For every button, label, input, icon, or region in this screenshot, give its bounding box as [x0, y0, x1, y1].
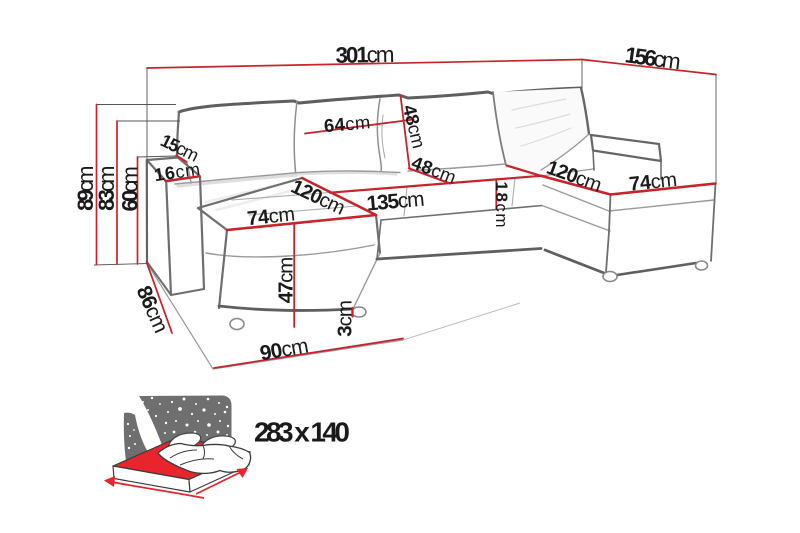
svg-text:3cm: 3cm [333, 300, 356, 337]
svg-text:47cm: 47cm [274, 257, 297, 303]
svg-text:60cm: 60cm [118, 166, 143, 211]
svg-text:83cm: 83cm [94, 166, 119, 211]
svg-text:18cm: 18cm [492, 182, 511, 228]
svg-text:301cm: 301cm [335, 42, 394, 68]
svg-text:64cm: 64cm [323, 111, 371, 136]
svg-text:283 x 140: 283 x 140 [254, 417, 350, 448]
